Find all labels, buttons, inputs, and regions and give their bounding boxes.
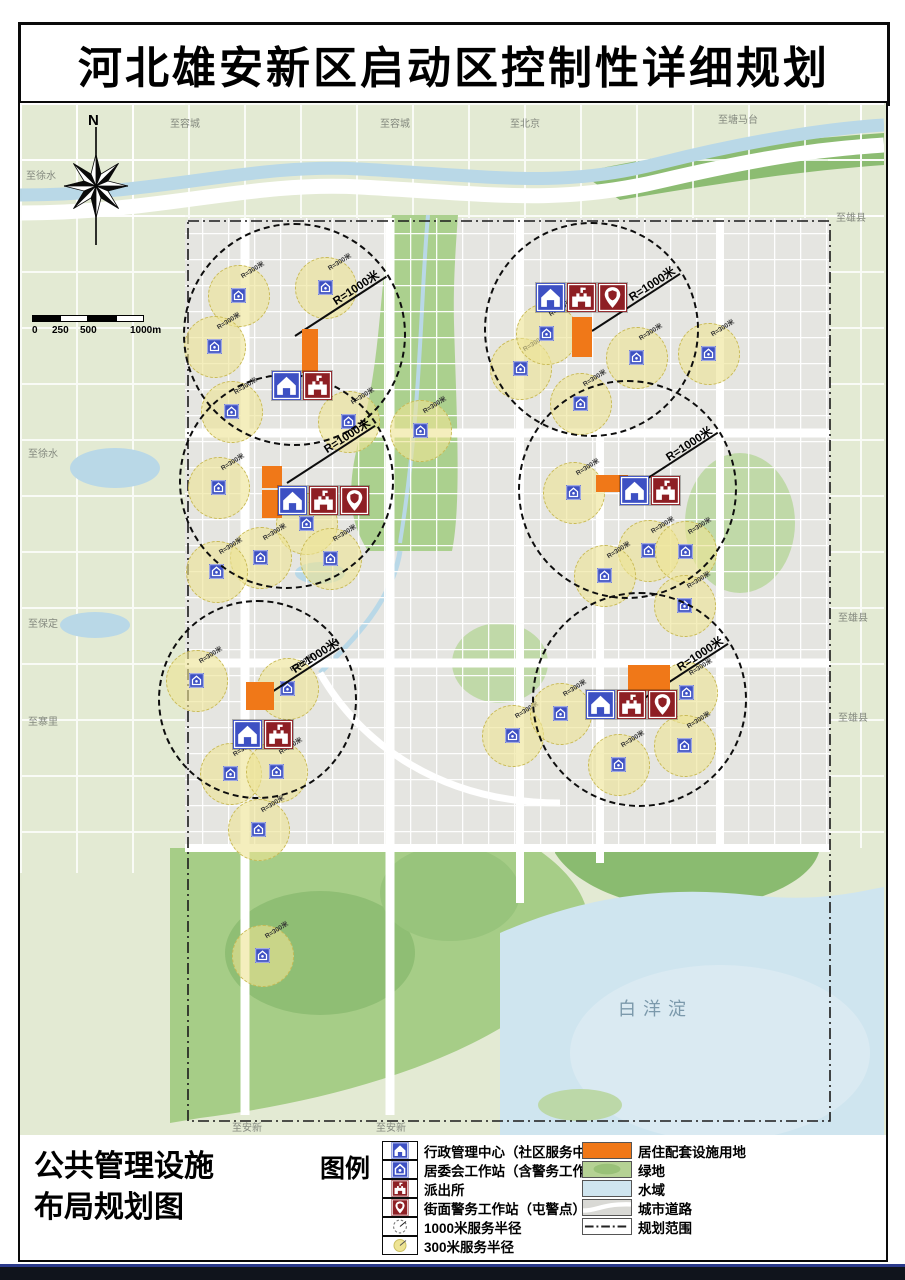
facility-cluster [233,720,293,749]
committee-station-icon [413,423,428,438]
legend-item-label: 城市道路 [638,1198,692,1218]
police-station-icon [309,486,338,515]
road-destination-label: 至北京 [510,115,540,130]
legend-item: 规划范围 [582,1219,746,1235]
admin-center-icon [278,486,307,515]
street-police-post-icon [598,283,627,312]
road-destination-label: 至徐水 [28,445,58,460]
scale-label: 250 [52,325,69,336]
legend-item-label: 居住配套设施用地 [638,1141,746,1161]
legend-item: 城市道路 [582,1200,746,1216]
legend-item: 居住配套设施用地 [582,1143,746,1159]
admin-legend-icon [382,1141,418,1160]
r300-legend-icon [382,1236,418,1255]
road-destination-label: 至安新 [376,1119,406,1134]
map-subtitle: 公共管理设施 布局规划图 [34,1147,214,1228]
admin-center-icon [233,720,262,749]
road-destination-label: 至雄县 [836,209,866,224]
road-destination-label: 至徐水 [26,167,56,182]
legend-item-label: 1000米服务半径 [424,1217,522,1237]
scale-label: 500 [80,325,97,336]
police-station-icon [651,476,680,505]
residential-facility-parcel [246,682,274,710]
footer-band: 公共管理设施 布局规划图 图例 行政管理中心（社区服务中心）居委会工作站（含警务… [18,1135,888,1262]
street-police-post-icon [648,690,677,719]
legend-item-label: 派出所 [424,1179,465,1199]
police-station-icon [264,720,293,749]
legend-item-label: 街面警务工作站（屯警点） [424,1198,586,1218]
admin-center-icon [536,283,565,312]
legend-item: 行政管理中心（社区服务中心） [382,1143,613,1159]
map-canvas: R=300米R=300米R=300米R=300米R=300米R=300米R=30… [18,101,888,1139]
water-legend-swatch [582,1180,632,1197]
legend-item: 街面警务工作站（屯警点） [382,1200,613,1216]
north-arrow: N [58,111,134,251]
street-police-post-icon [340,486,369,515]
north-label: N [88,112,99,129]
legend-item: 水域 [582,1181,746,1197]
road-destination-label: 至塘马台 [718,111,758,126]
scale-seg [32,315,60,322]
legend-item: 300米服务半径 [382,1238,613,1254]
residential-facility-parcel [628,665,670,691]
r1000-legend-icon [382,1217,418,1236]
committee-station-icon [505,728,520,743]
lake-label: 白洋淀 [618,995,693,1021]
plan-sheet: 河北雄安新区启动区控制性详细规划 [0,0,905,1280]
facility-cluster [278,486,369,515]
police-station-icon [617,690,646,719]
road-destination-label: 至雄县 [838,709,868,724]
orange-legend-swatch [582,1142,632,1159]
admin-center-icon [620,476,649,505]
legend-item: 派出所 [382,1181,613,1197]
scale-bar: 0 250 500 1000m [32,315,172,341]
sheet-bottom-strip [0,1264,905,1280]
road-destination-label: 至安新 [232,1119,262,1134]
road-destination-label: 至容城 [170,115,200,130]
scale-seg [88,315,116,322]
map-overlay: R=300米R=300米R=300米R=300米R=300米R=300米R=30… [20,103,884,1135]
scale-label: 1000m [130,325,161,336]
legend-item: 绿地 [582,1162,746,1178]
police-station-icon [567,283,596,312]
legend-column-right: 居住配套设施用地绿地水域城市道路规划范围 [582,1143,746,1235]
green-legend-swatch [582,1161,632,1178]
road-destination-label: 至容城 [380,115,410,130]
boundary-legend-swatch [582,1218,632,1235]
legend-column-left: 行政管理中心（社区服务中心）居委会工作站（含警务工作站）派出所街面警务工作站（屯… [382,1143,613,1254]
page-title: 河北雄安新区启动区控制性详细规划 [78,32,830,96]
road-destination-label: 至保定 [28,615,58,630]
police-station-icon [303,371,332,400]
facility-cluster [536,283,627,312]
committee-station-icon [251,822,266,837]
admin-center-icon [586,690,615,719]
scale-seg [60,315,88,322]
title-band: 河北雄安新区启动区控制性详细规划 [18,22,890,106]
road-destination-label: 至雄县 [838,609,868,624]
committee-station-icon [255,948,270,963]
road-destination-label: 至寨里 [28,713,58,728]
residential-facility-parcel [262,466,282,488]
facility-cluster [620,476,680,505]
road-legend-swatch [582,1199,632,1216]
facility-cluster [586,690,677,719]
committee-station-icon [701,346,716,361]
police-legend-icon [382,1179,418,1198]
legend-item-label: 300米服务半径 [424,1236,514,1256]
legend-item-label: 规划范围 [638,1217,692,1237]
legend-item: 1000米服务半径 [382,1219,613,1235]
scale-seg [116,315,144,322]
residential-facility-parcel [572,317,592,357]
pin-legend-icon [382,1198,418,1217]
scale-label: 0 [32,325,38,336]
admin-center-icon [272,371,301,400]
legend-title: 图例 [320,1149,370,1185]
legend-item: 居委会工作站（含警务工作站） [382,1162,613,1178]
facility-cluster [272,371,332,400]
committee-legend-icon [382,1160,418,1179]
residential-facility-parcel [302,329,318,373]
legend-item-label: 水域 [638,1179,665,1199]
legend-item-label: 绿地 [638,1160,665,1180]
